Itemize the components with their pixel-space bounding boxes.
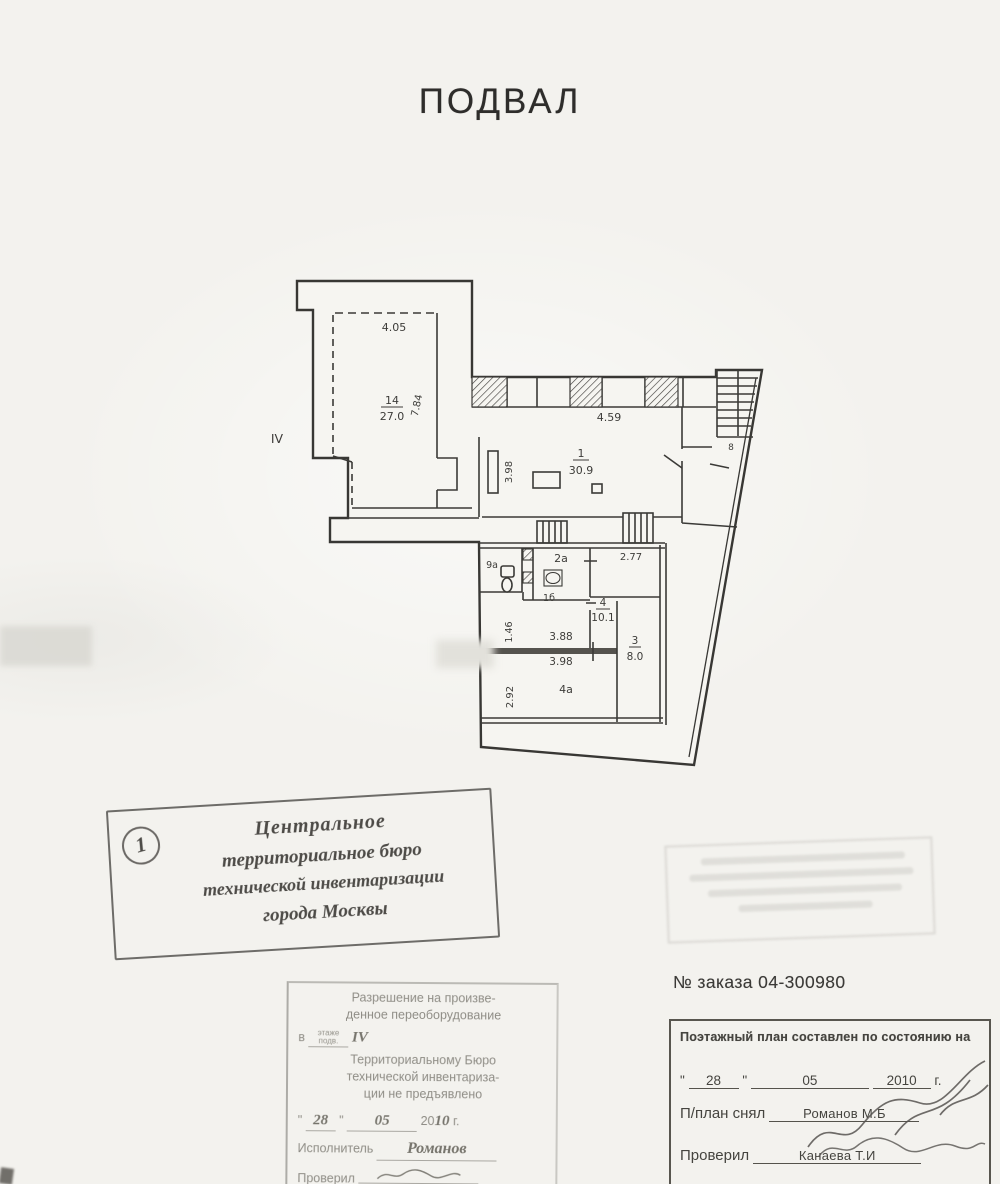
- scanned-document-page: ПОДВАЛ: [0, 0, 1000, 1184]
- room4-number: 4: [600, 597, 607, 609]
- room1-number: 1: [578, 447, 585, 460]
- date-month: 05: [751, 1073, 869, 1089]
- room1-fixture: [533, 472, 560, 488]
- perm-year-handwritten: 10: [434, 1113, 449, 1129]
- room3-area: 8.0: [627, 651, 644, 663]
- faint-stamp: [664, 836, 935, 943]
- dim-corridor-upper: 3.88: [549, 631, 572, 643]
- perm-line-5: технической инвентариза-: [298, 1068, 548, 1087]
- perm-executor-label: Исполнитель: [298, 1141, 374, 1156]
- perm-executor-signature: Романов: [377, 1138, 497, 1161]
- surveyed-row: П/план снял Романов М.Б: [680, 1105, 919, 1122]
- perm-line-6: ции не предъявлено: [298, 1085, 548, 1104]
- floor-roman-label: IV: [271, 431, 284, 446]
- room4a-label: 4а: [559, 683, 573, 696]
- checked-by: Канаева Т.И: [753, 1148, 921, 1164]
- checked-label: Проверил: [680, 1147, 749, 1164]
- perm-day-handwritten: 28: [306, 1110, 336, 1131]
- bti-bureau-stamp: 1 Центральное территориальное бюро техни…: [106, 788, 500, 961]
- room3-number: 3: [632, 635, 639, 647]
- order-number: № заказа 04-300980: [673, 972, 845, 993]
- room14-area: 27.0: [380, 410, 405, 423]
- faint-stamp-line: [708, 883, 902, 897]
- dim-room4a-height: 2.92: [505, 686, 516, 708]
- faint-stamp-line: [738, 900, 872, 912]
- date-table-header: Поэтажный план составлен по состоянию на: [671, 1021, 989, 1044]
- faint-stamp-line: [689, 867, 913, 882]
- floor-plan: IV 4.05 14 27.0 7.84 4.59 3.98 1 30.9 8 …: [255, 258, 795, 778]
- dim-top-left: 4.05: [382, 321, 407, 334]
- date-year-suffix: г.: [934, 1073, 941, 1088]
- date-year: 2010: [873, 1073, 931, 1089]
- perm-century: 20: [421, 1114, 435, 1128]
- perm-quote-open: ": [298, 1113, 303, 1127]
- checked-row: Проверил Канаева Т.И: [680, 1147, 921, 1164]
- mid-thick-wall: [481, 648, 617, 654]
- quote-close: ": [742, 1073, 747, 1088]
- faint-stamp-line: [701, 851, 905, 865]
- room1b-label: 1б: [543, 593, 555, 604]
- scan-artifact-corner: [0, 1167, 14, 1184]
- perm-line-4: Территориальному Бюро: [298, 1051, 548, 1070]
- toilet-tank: [501, 566, 514, 577]
- dim-corridor-lower: 3.98: [549, 656, 572, 668]
- dim-pier-height: 3.98: [504, 461, 515, 483]
- small-stair-2: [623, 513, 653, 543]
- room2a-label: 2а: [554, 552, 568, 565]
- page-title: ПОДВАЛ: [0, 82, 1000, 122]
- perm-floor-word-bottom: подв.: [319, 1037, 339, 1046]
- room9a-label: 9а: [486, 560, 498, 571]
- dim-corridor-height: 1.46: [504, 621, 515, 642]
- perm-checked-signature: [358, 1166, 478, 1184]
- room14-number: 14: [385, 394, 399, 407]
- perm-month-handwritten: 05: [347, 1110, 417, 1132]
- perm-floor-word-top: этаже: [318, 1028, 340, 1037]
- permission-form-stamp: Разрешение на произве- денное переоборуд…: [285, 981, 558, 1184]
- toilet-bowl: [502, 578, 512, 592]
- scan-artifact-streak: [0, 626, 92, 666]
- surveyed-by: Романов М.Б: [769, 1106, 919, 1122]
- sink-bowl: [546, 573, 560, 584]
- scan-artifact-smudge: [436, 640, 494, 668]
- small-stair-1: [537, 521, 567, 543]
- perm-checked-label: Проверил: [297, 1171, 355, 1184]
- dim-room1-width: 4.59: [597, 411, 622, 424]
- wall-pier-a: [523, 549, 533, 560]
- room1-area: 30.9: [569, 464, 594, 477]
- perm-quote-close: ": [339, 1113, 344, 1127]
- date-day: 28: [689, 1073, 739, 1089]
- room1-small-fixture: [592, 484, 602, 493]
- quote-open: ": [680, 1073, 685, 1088]
- date-line: " 28 " 05 2010 г.: [680, 1073, 980, 1089]
- room4-area: 10.1: [591, 612, 614, 624]
- perm-signature-squiggle: [373, 1166, 463, 1183]
- room1-pier: [488, 451, 498, 493]
- wall-hatch-2: [570, 377, 602, 407]
- wall-pier-b: [523, 572, 533, 583]
- surveyed-label: П/план снял: [680, 1105, 765, 1122]
- date-table: Поэтажный план составлен по состоянию на…: [669, 1019, 991, 1184]
- perm-line-2: денное переоборудование: [298, 1006, 548, 1025]
- wall-hatch-1: [472, 377, 507, 407]
- perm-prefix: в: [298, 1030, 305, 1044]
- wall-hatch-3: [645, 377, 678, 407]
- stair-room-number: 8: [728, 443, 734, 453]
- perm-floor-value-handwritten: IV: [352, 1029, 368, 1045]
- perm-line-1: Разрешение на произве-: [299, 989, 549, 1008]
- perm-year-suffix: г.: [453, 1114, 460, 1128]
- dim-room4-width: 2.77: [620, 552, 642, 563]
